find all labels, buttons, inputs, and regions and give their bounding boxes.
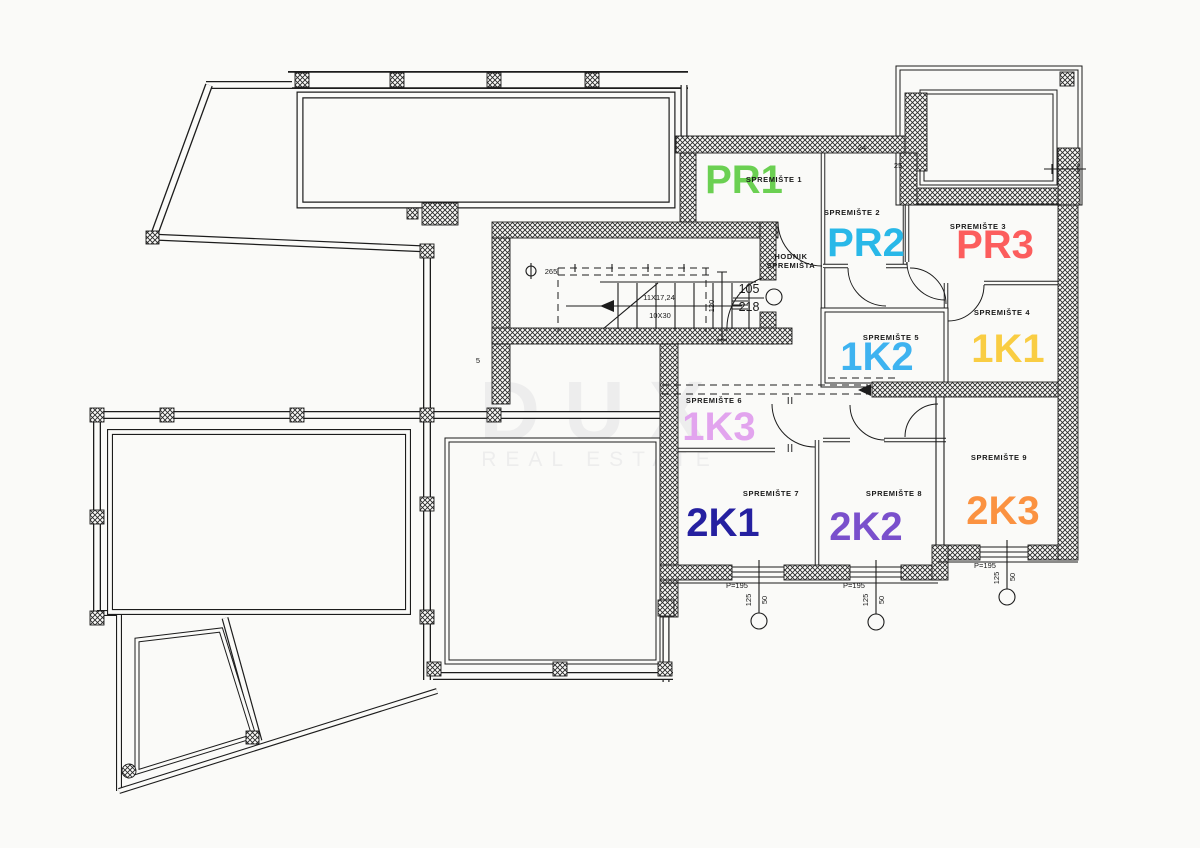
- window-dim-p195-1: P=195: [726, 581, 748, 590]
- unit-label-2k2: 2K2: [829, 505, 902, 549]
- dim-5: 5: [476, 356, 480, 365]
- storage-label-6: SPREMIŠTE 6: [686, 396, 742, 405]
- window-dim-50-2: 50: [877, 596, 886, 604]
- stair-direction-arrow: [600, 300, 614, 312]
- storage-label-3: SPREMIŠTE 3: [950, 222, 1006, 231]
- unit-label-pr2: PR2: [827, 221, 905, 265]
- window-dim-125-3: 125: [992, 572, 1001, 585]
- floor-plan: DUX REAL ESTATE: [0, 0, 1200, 848]
- window-dim-p195-3: P=195: [974, 561, 996, 570]
- floor-plan-drawing: DUX REAL ESTATE: [0, 0, 1200, 848]
- storage-label-9: SPREMIŠTE 9: [971, 453, 1027, 462]
- level-marker-circle: [766, 289, 782, 305]
- dim-24: 24: [858, 143, 866, 152]
- corridor-label-line1: HODNIK: [774, 252, 807, 261]
- stair-tread-label: 10X30: [649, 311, 671, 320]
- storage-label-1: SPREMIŠTE 1: [746, 175, 802, 184]
- dim-25: 25: [894, 161, 902, 170]
- window-dim-p195-2: P=195: [843, 581, 865, 590]
- stair-rise-label: 11X17,24: [643, 293, 675, 302]
- level-upper: 105: [739, 282, 760, 296]
- stair-height-dim: 120: [707, 300, 716, 313]
- storage-label-8: SPREMIŠTE 8: [866, 489, 922, 498]
- storage-label-4: SPREMIŠTE 4: [974, 308, 1030, 317]
- spindle-dim: 265: [545, 267, 558, 276]
- round-pillar: [122, 764, 136, 778]
- storage-label-2: SPREMIŠTE 2: [824, 208, 880, 217]
- unit-label-1k3: 1K3: [682, 405, 755, 449]
- unit-label-2k3: 2K3: [966, 489, 1039, 533]
- window-dim-50-1: 50: [760, 596, 769, 604]
- window-dim-125-1: 125: [744, 594, 753, 607]
- level-lower: 218: [739, 300, 760, 314]
- storage-label-5: SPREMIŠTE 5: [863, 333, 919, 342]
- unit-label-2k1: 2K1: [686, 501, 759, 545]
- corridor-label-line2: SPREMIŠTA: [767, 261, 816, 270]
- storage-label-7: SPREMIŠTE 7: [743, 489, 799, 498]
- window-dim-50-3: 50: [1008, 573, 1017, 581]
- window-dim-125-2: 125: [861, 594, 870, 607]
- unit-label-1k1: 1K1: [971, 327, 1044, 371]
